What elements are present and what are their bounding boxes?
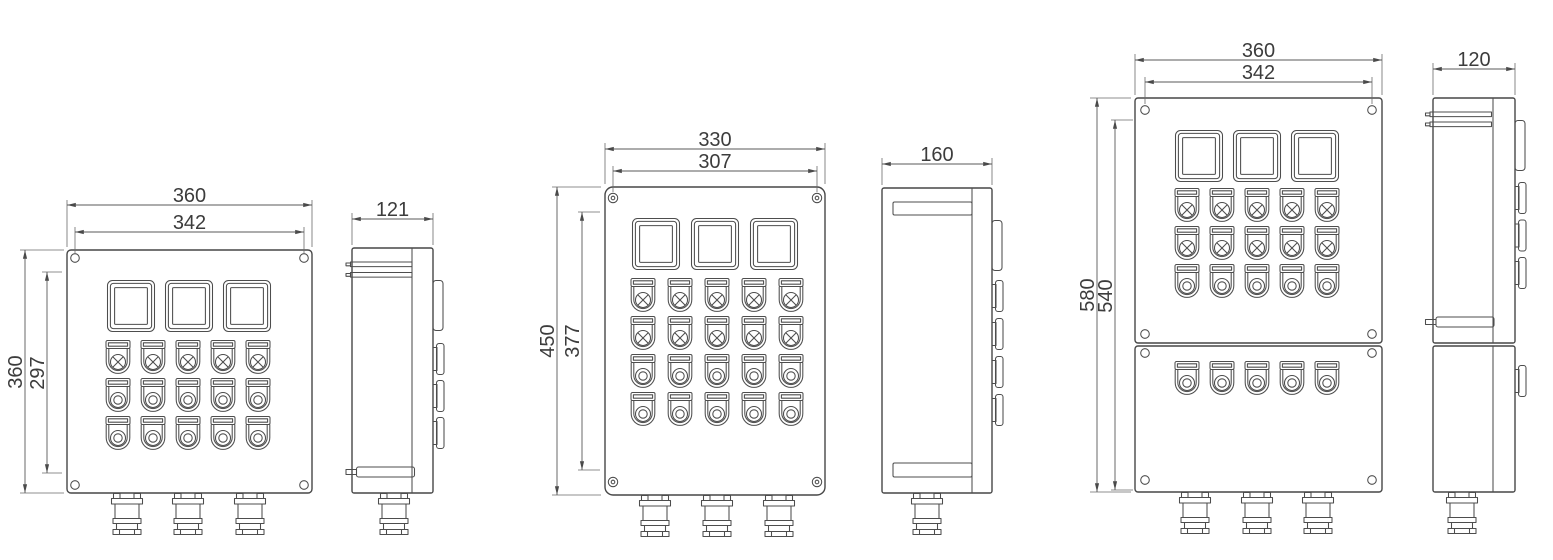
dim-a-width-mount: 342 — [173, 212, 206, 234]
cable-gland — [112, 494, 143, 535]
screw-hole — [1368, 476, 1377, 485]
pushbutton — [1175, 362, 1199, 395]
selector-pushbutton — [1315, 227, 1339, 260]
pushbutton — [1210, 362, 1234, 395]
pushbutton — [705, 393, 729, 426]
pushbutton — [246, 379, 270, 412]
pushbutton — [106, 417, 130, 450]
dim-a-depth: 121 — [376, 199, 409, 221]
indicator-window — [1176, 131, 1223, 182]
selector-pushbutton — [176, 341, 200, 374]
screw-hole — [1368, 349, 1377, 358]
selector-pushbutton — [779, 279, 803, 312]
button-side-profile — [992, 281, 1003, 312]
selector-pushbutton — [1315, 189, 1339, 222]
hinge-bar — [346, 273, 412, 278]
dim-c-width-mount: 342 — [1242, 62, 1275, 84]
dim-a-width-outer: 360 — [173, 185, 206, 207]
dim-b-width-outer: 330 — [698, 129, 731, 151]
indicator-window — [1292, 131, 1339, 182]
selector-pushbutton — [1210, 227, 1234, 260]
screw-hole — [300, 254, 309, 263]
button-side-profile — [992, 319, 1003, 350]
screw-hole — [1141, 330, 1150, 339]
cable-gland — [1242, 493, 1273, 534]
box-b-side-view — [882, 158, 1003, 535]
button-side-profile — [1515, 366, 1526, 397]
selector-pushbutton — [742, 317, 766, 350]
box-c-side-view — [1426, 63, 1527, 534]
selector-pushbutton — [211, 341, 235, 374]
pushbutton — [246, 417, 270, 450]
selector-pushbutton — [1280, 189, 1304, 222]
dim-b-height-outer: 450 — [537, 324, 559, 357]
selector-pushbutton — [1245, 227, 1269, 260]
hinge-bar — [1426, 122, 1492, 127]
window-side-profile — [992, 221, 1002, 271]
selector-pushbutton — [668, 279, 692, 312]
screw-hole — [1141, 476, 1150, 485]
selector-pushbutton — [705, 279, 729, 312]
indicator-window — [1234, 131, 1281, 182]
cable-gland — [1303, 493, 1334, 534]
pushbutton — [631, 393, 655, 426]
selector-pushbutton — [631, 279, 655, 312]
selector-pushbutton — [1245, 189, 1269, 222]
pushbutton — [742, 355, 766, 388]
box-a-front-view — [20, 200, 312, 535]
box-c-front-view — [1090, 54, 1382, 534]
screw-hole — [71, 481, 80, 490]
cable-gland — [764, 496, 795, 537]
screw-hole — [812, 193, 821, 202]
pushbutton — [211, 379, 235, 412]
pushbutton — [106, 379, 130, 412]
drawing-canvas: 360 342 360 297 121 330 307 450 377 160 … — [0, 0, 1553, 560]
selector-pushbutton — [246, 341, 270, 374]
screw-hole — [1368, 330, 1377, 339]
selector-pushbutton — [1175, 189, 1199, 222]
pushbutton — [1315, 362, 1339, 395]
technical-drawing: 360 342 360 297 121 330 307 450 377 160 … — [0, 0, 1553, 560]
cable-gland — [1447, 493, 1478, 534]
selector-pushbutton — [779, 317, 803, 350]
pushbutton — [668, 393, 692, 426]
selector-pushbutton — [668, 317, 692, 350]
dim-b-width-mount: 307 — [698, 151, 731, 173]
pushbutton — [1245, 362, 1269, 395]
dim-a-height-outer: 360 — [5, 355, 27, 388]
cable-gland — [379, 494, 410, 535]
screw-hole — [300, 481, 309, 490]
pushbutton — [705, 355, 729, 388]
cable-gland — [1180, 493, 1211, 534]
dim-b-height-mount: 377 — [562, 324, 584, 357]
button-side-profile — [992, 357, 1003, 388]
hinge-bar — [346, 262, 412, 267]
indicator-window — [166, 281, 213, 332]
selector-pushbutton — [1175, 227, 1199, 260]
selector-pushbutton — [631, 317, 655, 350]
dim-c-depth: 120 — [1457, 49, 1490, 71]
screw-hole — [1141, 349, 1150, 358]
pushbutton — [1245, 265, 1269, 298]
pushbutton — [1280, 265, 1304, 298]
selector-pushbutton — [1280, 227, 1304, 260]
selector-pushbutton — [141, 341, 165, 374]
latch-plate — [346, 467, 415, 477]
indicator-window — [633, 219, 680, 270]
hinge-bar — [1426, 112, 1492, 117]
dim-a-height-mount: 297 — [27, 356, 49, 389]
screw-hole — [1368, 106, 1377, 115]
selector-pushbutton — [1210, 189, 1234, 222]
button-side-profile — [1515, 220, 1526, 251]
cable-gland — [912, 494, 943, 535]
button-side-profile — [433, 344, 444, 375]
button-side-profile — [433, 381, 444, 412]
cable-gland — [173, 494, 204, 535]
pushbutton — [176, 379, 200, 412]
cable-gland — [235, 494, 266, 535]
pushbutton — [176, 417, 200, 450]
screw-hole — [608, 477, 617, 486]
pushbutton — [779, 355, 803, 388]
pushbutton — [141, 417, 165, 450]
dim-c-width-outer: 360 — [1242, 40, 1275, 62]
indicator-window — [751, 219, 798, 270]
window-side-profile — [1515, 121, 1525, 171]
selector-pushbutton — [705, 317, 729, 350]
pushbutton — [668, 355, 692, 388]
indicator-window — [692, 219, 739, 270]
button-side-profile — [1515, 183, 1526, 214]
box-a-side-view — [346, 213, 444, 535]
cable-gland — [640, 496, 671, 537]
box-b-front-view — [552, 143, 825, 537]
window-side-profile — [433, 281, 443, 331]
button-side-profile — [433, 418, 444, 449]
indicator-window — [224, 281, 271, 332]
selector-pushbutton — [106, 341, 130, 374]
pushbutton — [779, 393, 803, 426]
button-side-profile — [992, 395, 1003, 426]
latch-plate — [1426, 317, 1495, 327]
button-side-profile — [1515, 258, 1526, 289]
dim-b-depth: 160 — [920, 144, 953, 166]
dim-c-height-mount: 540 — [1095, 279, 1117, 312]
pushbutton — [742, 393, 766, 426]
pushbutton — [141, 379, 165, 412]
screw-hole — [812, 477, 821, 486]
pushbutton — [211, 417, 235, 450]
selector-pushbutton — [742, 279, 766, 312]
pushbutton — [1315, 265, 1339, 298]
pushbutton — [631, 355, 655, 388]
pushbutton — [1210, 265, 1234, 298]
pushbutton — [1175, 265, 1199, 298]
screw-hole — [1141, 106, 1150, 115]
cable-gland — [702, 496, 733, 537]
screw-hole — [608, 193, 617, 202]
screw-hole — [71, 254, 80, 263]
pushbutton — [1280, 362, 1304, 395]
indicator-window — [108, 281, 155, 332]
